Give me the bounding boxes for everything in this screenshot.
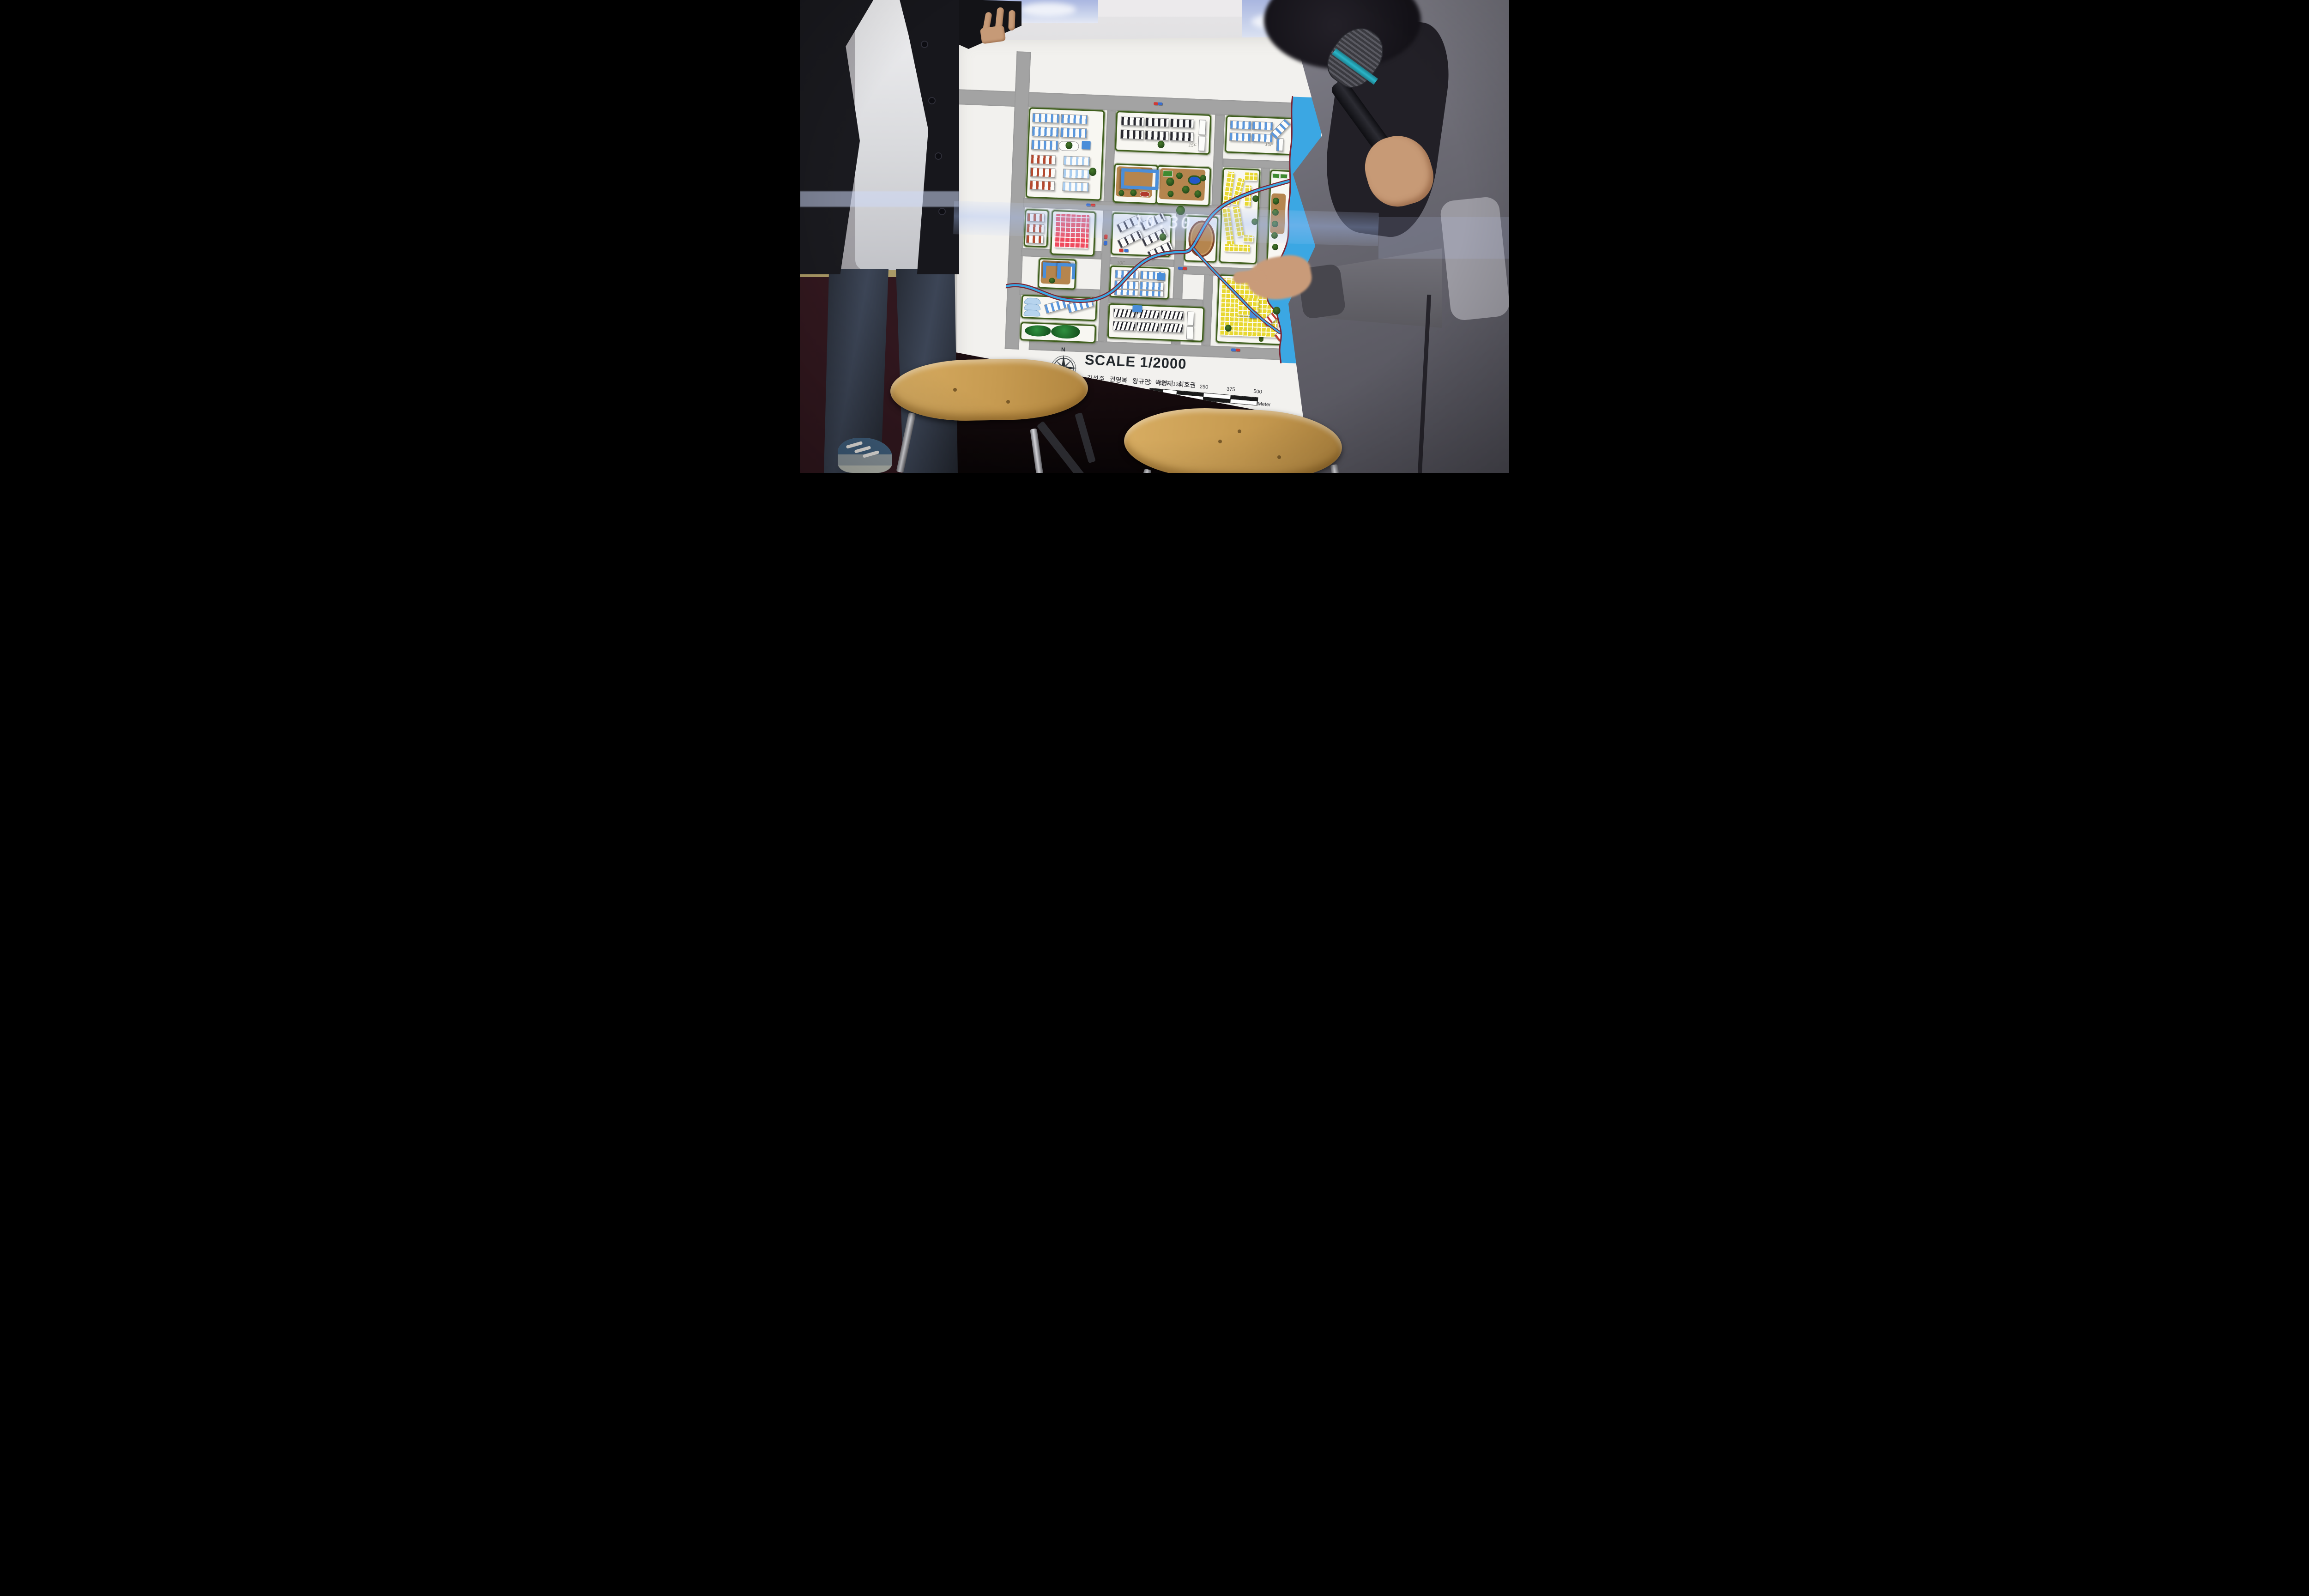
- court: [1140, 192, 1150, 197]
- tree: [1225, 325, 1232, 332]
- slab: [1186, 326, 1194, 340]
- roundabout-green: [1176, 206, 1185, 215]
- car: [1158, 102, 1162, 105]
- cube: [1157, 272, 1166, 280]
- tree: [1271, 232, 1278, 239]
- slab: [1120, 130, 1144, 139]
- seat-screw: [1277, 455, 1281, 459]
- cubes: [1244, 172, 1257, 181]
- slab: [1061, 114, 1088, 125]
- slab: [1198, 136, 1205, 151]
- slab: [1276, 138, 1283, 151]
- cube: [1250, 311, 1257, 319]
- scalebar-tick-label: 62.5: [1158, 381, 1168, 387]
- tree: [1176, 172, 1182, 179]
- car: [1119, 249, 1124, 252]
- slab: [1251, 133, 1273, 143]
- cube: [1082, 141, 1091, 150]
- slab: [1027, 224, 1045, 233]
- slab: [1030, 167, 1056, 178]
- car: [1105, 241, 1108, 246]
- left-person-knuckles: [980, 25, 1006, 44]
- cube: [1132, 305, 1142, 313]
- coat-button: [921, 41, 928, 48]
- slab: [1060, 127, 1087, 138]
- projection-screen-top: [1086, 0, 1252, 17]
- slab: [1114, 280, 1139, 290]
- floors-label: 10F: [1265, 142, 1273, 148]
- coat-button: [928, 97, 936, 104]
- car: [1231, 348, 1236, 351]
- slab: [1139, 290, 1164, 297]
- slab: [1115, 270, 1139, 279]
- left-person-sneaker: [838, 438, 892, 473]
- seat-screw: [1238, 429, 1241, 433]
- court: [1163, 170, 1173, 176]
- cubes: [1054, 214, 1089, 249]
- scalebar-tick-label: 375: [1227, 386, 1235, 393]
- slab: [1062, 181, 1089, 192]
- slab: [1033, 113, 1059, 124]
- slab: [1199, 120, 1206, 135]
- wooden-stool-seat: [890, 357, 1088, 422]
- tree: [1166, 178, 1174, 186]
- cubes: [1243, 235, 1254, 242]
- ushape: [1057, 263, 1076, 279]
- coat-button: [938, 208, 946, 215]
- slab: [1170, 132, 1193, 141]
- cubes: [1244, 185, 1251, 207]
- scalebar-tick-label: 250: [1199, 384, 1208, 390]
- car: [1124, 249, 1129, 252]
- slab: [1145, 131, 1168, 140]
- slab: [1170, 119, 1194, 128]
- car: [1154, 102, 1158, 105]
- left-person-finger: [1008, 10, 1015, 30]
- car: [1086, 203, 1091, 206]
- tree: [1273, 307, 1281, 314]
- slab: [1136, 322, 1160, 332]
- pond: [1190, 176, 1200, 184]
- slab: [1229, 133, 1251, 142]
- scalebar-tick-label: 0: [1148, 380, 1152, 385]
- slab: [1121, 116, 1144, 126]
- model: 15F10F10F: [1003, 68, 1333, 367]
- tree: [1159, 233, 1167, 241]
- slab: [1230, 121, 1251, 130]
- slab: [1146, 117, 1169, 127]
- slab: [1063, 169, 1089, 179]
- car: [1091, 204, 1095, 207]
- tree: [1130, 189, 1136, 196]
- tree: [1273, 198, 1279, 205]
- slab: [1027, 213, 1045, 222]
- court: [1280, 174, 1287, 179]
- tree: [1049, 278, 1055, 284]
- seat-screw: [1006, 400, 1010, 404]
- seat-screw: [953, 388, 957, 392]
- ushape: [1121, 168, 1141, 189]
- scalebar-unit: Meter: [1257, 401, 1271, 407]
- floors-label: 10F: [1117, 260, 1125, 266]
- slab: [1031, 154, 1056, 165]
- right-person-jacket-lining: [1439, 196, 1509, 321]
- court: [1272, 173, 1280, 178]
- seat-screw: [1218, 440, 1222, 443]
- slab: [1187, 311, 1195, 326]
- slab: [1031, 140, 1058, 151]
- compass-n-label: N: [1061, 346, 1065, 353]
- slab: [1140, 281, 1164, 290]
- slab: [1114, 289, 1138, 296]
- coat-button: [935, 152, 942, 160]
- slab: [1026, 235, 1044, 244]
- slab: [1064, 156, 1090, 166]
- slab: [1030, 180, 1055, 191]
- slab: [1161, 310, 1184, 320]
- photo-scene: 15F10F10F N SCALE 1/2000 김성주 권영복 왕규연 박영재…: [800, 0, 1509, 473]
- car: [1236, 348, 1240, 351]
- slab: [1160, 323, 1183, 332]
- cubes: [1224, 244, 1250, 253]
- slab: [1252, 121, 1273, 131]
- scalebar-tick-label: 125: [1173, 381, 1181, 388]
- ushape: [1139, 169, 1159, 190]
- car: [1183, 267, 1187, 270]
- slab: [1112, 321, 1136, 331]
- car: [1178, 266, 1183, 270]
- floors-label: 15F: [1188, 143, 1197, 149]
- slab: [1032, 127, 1059, 137]
- scalebar-tick-label: 500: [1253, 389, 1262, 395]
